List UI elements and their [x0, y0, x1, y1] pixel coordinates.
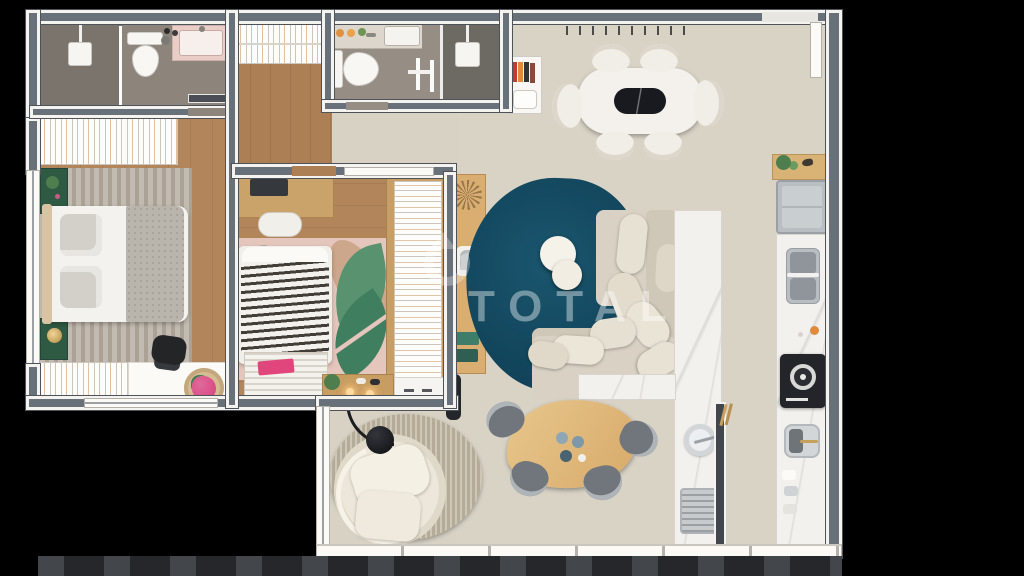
dining-chair-left: [552, 84, 582, 128]
shower-glass-partition: [119, 26, 122, 110]
door-bath2-gap: [346, 102, 388, 110]
window-left-bedroom: [26, 170, 40, 368]
vanity2-soap: [336, 29, 344, 37]
shelf-plant: [324, 374, 340, 390]
cosmetics: [164, 28, 170, 34]
bedroom2-desk-chair: [258, 212, 302, 237]
fridge-top: [782, 186, 822, 228]
wall-bedrooms-divider: [226, 10, 238, 408]
cooktop-handle: [786, 398, 808, 401]
shelf-lamp-a: [346, 388, 354, 396]
double-sink-bowl-a: [790, 252, 816, 274]
bedroom2-laptop: [250, 179, 288, 196]
towel-rail: [416, 58, 420, 90]
cabinet-handles: [404, 389, 414, 392]
armchair-cushion-seat: [354, 489, 422, 542]
bed-pillow-bottom: [60, 266, 102, 308]
wall-bottom-bedroom2: [316, 396, 458, 410]
nightstand-plant-pot: [46, 176, 59, 189]
shelf-bin: [513, 90, 537, 109]
door-bath1-gap: [188, 108, 230, 116]
office-chair: [150, 334, 188, 366]
shelf-dishes: [356, 378, 366, 384]
toilet-tank: [127, 32, 163, 45]
marble-tray: [614, 88, 666, 114]
floor-lamp-shade: [366, 426, 394, 454]
bed-pillow-top: [60, 214, 102, 256]
vanity2-basin: [384, 26, 420, 46]
double-sink-bowl-b: [790, 278, 816, 300]
exterior-band: [38, 556, 842, 576]
shower2-head: [455, 42, 480, 67]
bed-headboard: [42, 204, 52, 324]
floor-drain: [161, 36, 170, 45]
window-bedroom1-south: [84, 398, 218, 408]
cooktop-burner-center: [800, 374, 806, 380]
dining-chair-right: [694, 80, 724, 126]
counter-knob-item: [810, 326, 819, 335]
towel-rail-bar: [408, 70, 430, 74]
zebra-duvet: [241, 262, 329, 354]
wall-left-mid: [26, 118, 40, 174]
sideboard-books: [455, 332, 479, 345]
gold-table-lamp: [47, 328, 62, 343]
counter-bottles: [782, 470, 796, 480]
vanity2-faucet: [366, 33, 376, 37]
wall-top: [30, 10, 832, 24]
book-spines: [512, 62, 517, 82]
dining-chair-bottom-left: [596, 132, 634, 160]
sliding-door-bedroom2: [344, 167, 434, 176]
watermark-logo-chevron: [430, 232, 456, 249]
master-wardrobe: [38, 112, 178, 165]
dining-chair-bottom-right: [644, 132, 682, 160]
window-lounge-left: [316, 406, 330, 548]
dining-chair-top-right: [640, 44, 678, 72]
shower-head: [68, 42, 92, 66]
wall-bath2-west: [322, 10, 334, 110]
bed-throw-blanket: [126, 206, 184, 322]
watermark-text: TOTAL: [468, 282, 681, 332]
wall-right: [826, 10, 842, 558]
door-bedroom2-gap: [292, 166, 336, 176]
entry-door-gap: [762, 12, 818, 22]
wall-bath2-east: [500, 10, 512, 112]
prep-sink-faucet: [800, 440, 818, 443]
vanity-basin: [179, 30, 223, 56]
kitchen-plant: [776, 155, 791, 170]
island-vented-appliance: [680, 488, 718, 534]
floor-plan-render: TOTAL: [0, 0, 1024, 576]
wall-peg-rack: [566, 26, 692, 35]
dining-chair-top-left: [592, 44, 630, 72]
wall-living-divider: [444, 172, 456, 408]
kitchen-island-counter: [578, 374, 676, 400]
vanity-faucet: [199, 26, 205, 32]
hallway-closet-shelf-line: [234, 43, 322, 45]
twig-decor: [452, 180, 482, 210]
double-sink-faucet: [787, 273, 819, 277]
table-cups: [556, 432, 568, 444]
entry-door-leaf: [810, 22, 822, 78]
